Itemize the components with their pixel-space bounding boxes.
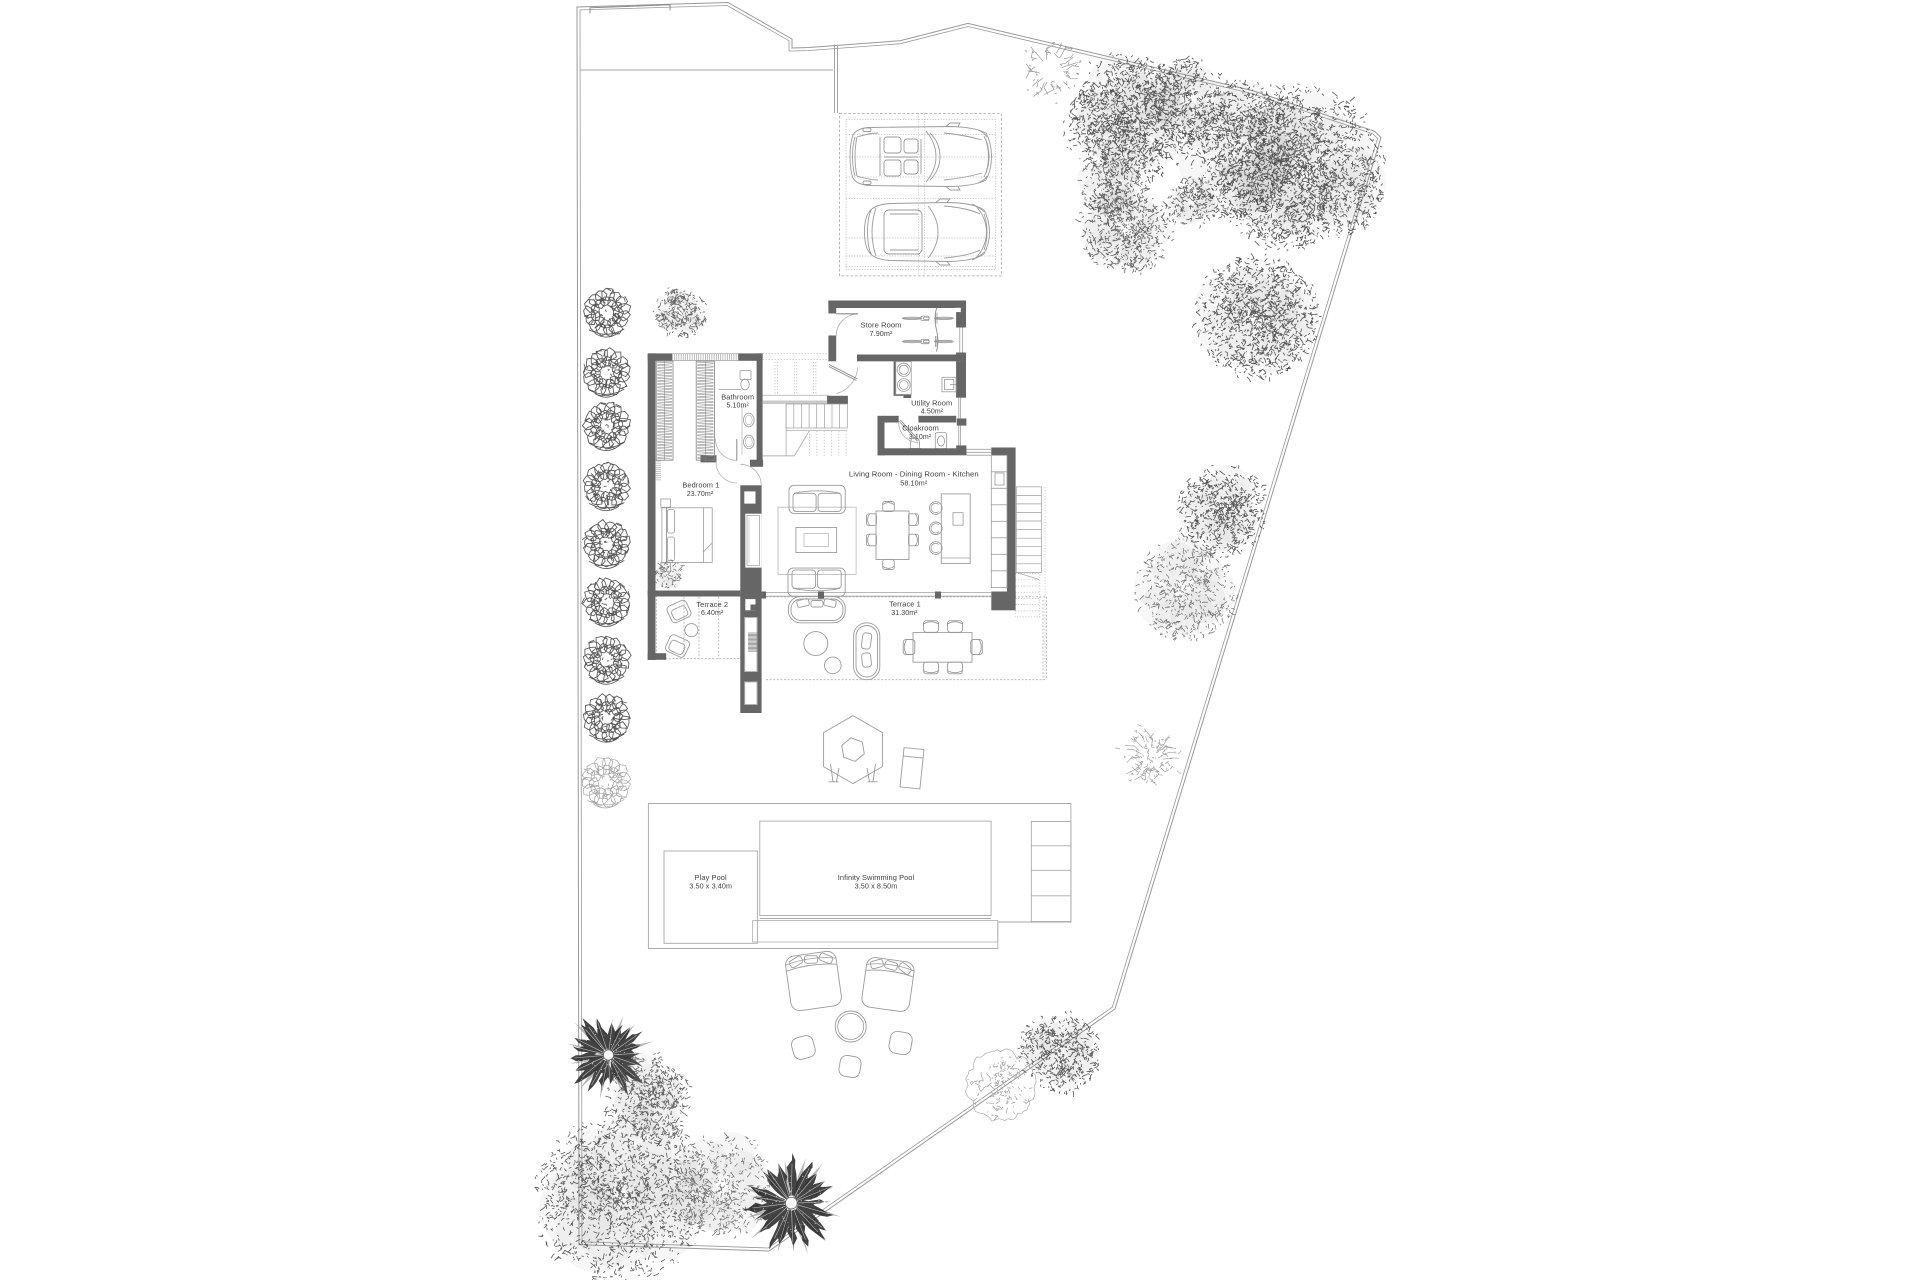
svg-text:6.40m²: 6.40m² — [701, 610, 724, 617]
svg-text:Terrace 1: Terrace 1 — [889, 600, 921, 609]
svg-text:7.90m²: 7.90m² — [870, 329, 893, 338]
svg-text:3.10m²: 3.10m² — [909, 434, 932, 441]
svg-text:Cloakroom: Cloakroom — [902, 424, 939, 433]
svg-text:Bathroom: Bathroom — [721, 392, 754, 401]
svg-text:5.10m²: 5.10m² — [727, 402, 750, 409]
svg-text:23.70m²: 23.70m² — [687, 491, 714, 498]
svg-text:Utility Room: Utility Room — [911, 399, 952, 408]
svg-text:3.50 x 8.50m: 3.50 x 8.50m — [855, 882, 898, 891]
svg-text:Terrace 2: Terrace 2 — [696, 600, 728, 609]
svg-text:58.10m²: 58.10m² — [900, 479, 928, 488]
svg-text:31.30m²: 31.30m² — [891, 610, 918, 617]
svg-text:3.50 x 3.40m: 3.50 x 3.40m — [689, 882, 732, 891]
svg-text:4.50m²: 4.50m² — [921, 409, 944, 416]
svg-text:Bedroom 1: Bedroom 1 — [682, 481, 719, 490]
svg-text:Living Room - Dining Room - Ki: Living Room - Dining Room - Kitchen — [849, 470, 979, 479]
